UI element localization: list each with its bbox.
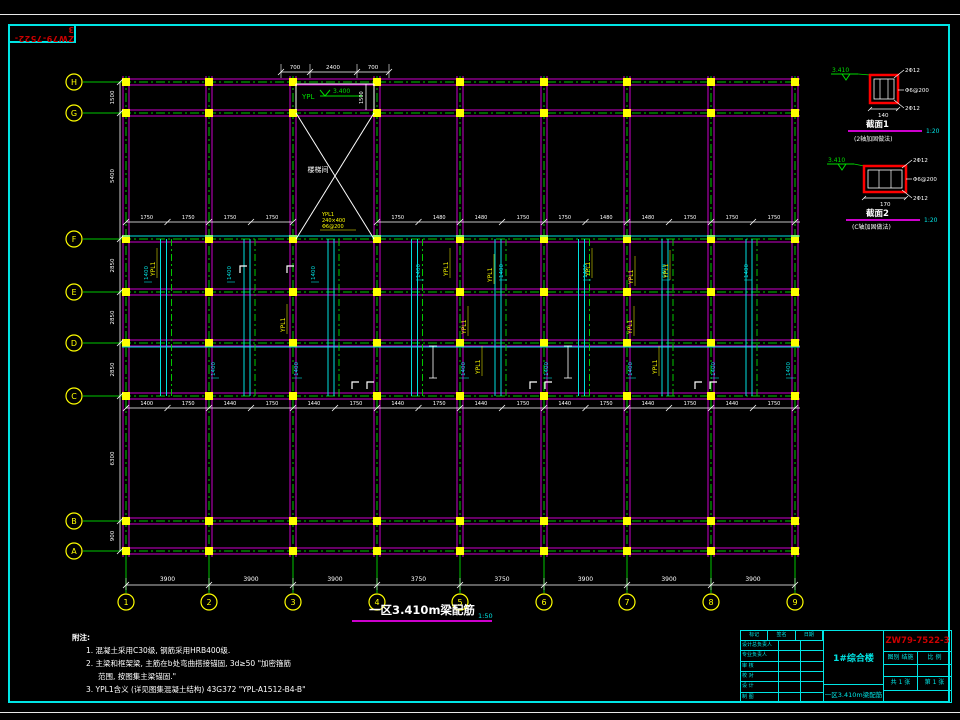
bay-dim-text: 1400 bbox=[416, 264, 422, 278]
column-marker bbox=[205, 547, 213, 555]
bay-dim-text: 1400 bbox=[461, 362, 467, 376]
row-axis-label: G bbox=[71, 109, 77, 118]
column-marker bbox=[623, 288, 631, 296]
column-marker bbox=[456, 339, 464, 347]
plan-title-block: 一区3.410m梁配筋 bbox=[352, 602, 492, 622]
drawing-title: 一区3.410m梁配筋 bbox=[824, 685, 883, 702]
column-marker bbox=[456, 78, 464, 86]
corner-bracket-icon bbox=[352, 382, 359, 389]
row-axis-label: C bbox=[71, 392, 77, 401]
title-block: 标记 签名 日期 设计总负责人 专业负责人 审 核 校 对 设 计 制 图 1#… bbox=[740, 630, 952, 703]
beam-label: YPL1 bbox=[461, 319, 468, 335]
tb-role: 设 计 bbox=[741, 682, 779, 691]
top-dim-text: 2400 bbox=[326, 65, 340, 71]
lower-dim-text: 1440 bbox=[558, 401, 571, 407]
bay-dim-text: 1400 bbox=[499, 264, 505, 278]
detail-scale: 1:20 bbox=[924, 217, 938, 224]
upper-dim-text: 1750 bbox=[684, 215, 697, 221]
level-symbol-icon bbox=[842, 74, 850, 80]
stirrup-outline bbox=[868, 170, 902, 188]
column-marker bbox=[540, 392, 548, 400]
column-marker bbox=[707, 288, 715, 296]
column-marker bbox=[791, 547, 799, 555]
ypl-label: YPL bbox=[301, 93, 314, 101]
left-dim-text: 2850 bbox=[110, 310, 116, 324]
left-dim-text: 5400 bbox=[110, 169, 116, 183]
bay-dim-text: 1400 bbox=[744, 264, 750, 278]
column-marker bbox=[791, 517, 799, 525]
section-detail-2: 3.410 2Φ12 Φ6@200 2Φ12 170 截面2 1:20 (C轴加… bbox=[824, 150, 960, 230]
corner-bracket-icon bbox=[367, 382, 374, 389]
bay-dim-text: 1400 bbox=[711, 362, 717, 376]
column-marker bbox=[791, 288, 799, 296]
tb-type-cell: 图别 结施 bbox=[884, 652, 918, 664]
beam-label: YPL1 bbox=[487, 267, 494, 283]
left-dim-text: 2850 bbox=[110, 258, 116, 272]
lower-dim-text: 1750 bbox=[517, 401, 530, 407]
column-marker bbox=[289, 547, 297, 555]
upper-dim-text: 1480 bbox=[475, 215, 488, 221]
tb-header-cell: 标记 bbox=[741, 631, 768, 640]
note-line: 范围, 按图集主梁锚固." bbox=[72, 670, 402, 683]
column-marker bbox=[456, 109, 464, 117]
lower-dim-text: 1440 bbox=[642, 401, 655, 407]
left-dim-text: 2850 bbox=[110, 362, 116, 376]
detail-sub: (C轴加固做法) bbox=[852, 223, 891, 230]
bay-dim-text: 1400 bbox=[311, 266, 317, 280]
column-marker bbox=[289, 517, 297, 525]
column-marker bbox=[373, 517, 381, 525]
col-axis-label: 8 bbox=[708, 598, 713, 607]
bay-dim-text: 1400 bbox=[628, 362, 634, 376]
upper-dim-text: 1750 bbox=[768, 215, 781, 221]
row-axis-label: F bbox=[72, 235, 77, 244]
beam-label: YPL1 bbox=[475, 359, 482, 375]
upper-dim-text: 1480 bbox=[600, 215, 613, 221]
top-dim-text: 700 bbox=[290, 65, 301, 71]
tb-header-cell: 签名 bbox=[768, 631, 795, 640]
beam-label: YPL1 bbox=[280, 317, 287, 333]
lower-dim-text: 1440 bbox=[391, 401, 404, 407]
bottom-rebar-label: 2Φ12 bbox=[913, 196, 928, 202]
upper-dim-text: 1750 bbox=[726, 215, 739, 221]
corner-bracket-icon bbox=[545, 382, 552, 389]
bottom-dim-text: 3900 bbox=[745, 576, 760, 583]
bottom-dim-text: 3900 bbox=[160, 576, 175, 583]
column-marker bbox=[623, 78, 631, 86]
column-marker bbox=[205, 392, 213, 400]
tb-role: 审 核 bbox=[741, 662, 779, 671]
col-axis-label: 3 bbox=[290, 598, 295, 607]
notes-heading: 附注: bbox=[72, 631, 402, 644]
detail-title: 截面2 bbox=[866, 208, 889, 219]
column-marker bbox=[623, 109, 631, 117]
column-marker bbox=[707, 517, 715, 525]
column-marker bbox=[791, 78, 799, 86]
column-marker bbox=[456, 392, 464, 400]
stair-vdim-text: 1500 bbox=[359, 91, 365, 104]
bottom-dim-text: 3900 bbox=[578, 576, 593, 583]
lower-dim-text: 1750 bbox=[684, 401, 697, 407]
upper-dim-text: 1750 bbox=[182, 215, 195, 221]
lower-dim-text: 1750 bbox=[350, 401, 363, 407]
bottom-dim-text: 3900 bbox=[661, 576, 676, 583]
lower-dim-text: 1440 bbox=[308, 401, 321, 407]
column-marker bbox=[540, 78, 548, 86]
tb-sheet-cell: 第 1 张 bbox=[918, 677, 951, 690]
section-detail-1: 3.410 2Φ12 Φ6@200 2Φ12 140 截面1 1:20 (2轴加… bbox=[828, 58, 958, 144]
tb-header-cell: 日期 bbox=[796, 631, 823, 640]
column-marker bbox=[205, 339, 213, 347]
column-marker bbox=[540, 288, 548, 296]
column-marker bbox=[205, 517, 213, 525]
column-marker bbox=[456, 547, 464, 555]
lower-dim-text: 1750 bbox=[768, 401, 781, 407]
stirrup-label: Φ6@200 bbox=[913, 177, 937, 183]
column-marker bbox=[623, 339, 631, 347]
left-dim-text: 6300 bbox=[110, 451, 116, 465]
top-rebar-label: 2Φ12 bbox=[913, 158, 928, 164]
level-value: 3.400 bbox=[333, 88, 350, 95]
plan-scale: 1:50 bbox=[478, 612, 493, 620]
drawing-sheet: ZW79-7522-3 HGFEDCBA123456789楼梯间YPL3.400… bbox=[0, 0, 960, 720]
upper-dim-text: 1750 bbox=[140, 215, 153, 221]
column-marker bbox=[623, 547, 631, 555]
top-dim-text: 700 bbox=[368, 65, 379, 71]
stairwell-label: 楼梯间 bbox=[308, 165, 329, 174]
upper-dim-text: 1750 bbox=[558, 215, 571, 221]
bottom-rebar-label: 2Φ12 bbox=[905, 106, 920, 112]
column-marker bbox=[791, 392, 799, 400]
lower-dim-text: 1750 bbox=[600, 401, 613, 407]
level-symbol-icon bbox=[838, 164, 846, 170]
detail-sub: (2轴加固做法) bbox=[854, 135, 893, 143]
bottom-dim-text: 3750 bbox=[494, 576, 509, 583]
column-marker bbox=[540, 547, 548, 555]
column-marker bbox=[791, 109, 799, 117]
beam-label: YPL1 bbox=[443, 261, 450, 277]
column-marker bbox=[623, 392, 631, 400]
top-rebar-label: 2Φ12 bbox=[905, 68, 920, 74]
lower-dim-text: 1440 bbox=[475, 401, 488, 407]
column-marker bbox=[289, 109, 297, 117]
bay-dim-text: 1400 bbox=[211, 362, 217, 376]
bottom-dim-text: 3750 bbox=[411, 576, 426, 583]
tb-sheet-cell: 共 1 张 bbox=[884, 677, 918, 690]
note-line: 1. 混凝土采用C30级, 钢筋采用HRB400级. bbox=[72, 644, 402, 657]
lower-dim-text: 1750 bbox=[182, 401, 195, 407]
upper-dim-text: 1750 bbox=[517, 215, 530, 221]
project-name: 1#综合楼 bbox=[824, 631, 883, 685]
lower-dim-text: 1750 bbox=[266, 401, 279, 407]
column-marker bbox=[540, 109, 548, 117]
plan-title: 一区3.410m梁配筋 bbox=[352, 602, 492, 618]
column-marker bbox=[373, 288, 381, 296]
detail-title: 截面1 bbox=[866, 119, 889, 130]
column-marker bbox=[456, 288, 464, 296]
detail-scale: 1:20 bbox=[926, 128, 940, 135]
beam-label: YPL1 bbox=[585, 261, 592, 277]
upper-dim-text: 1480 bbox=[642, 215, 655, 221]
column-marker bbox=[205, 109, 213, 117]
column-marker bbox=[205, 288, 213, 296]
bottom-dim-text: 3900 bbox=[243, 576, 258, 583]
upper-dim-text: 1480 bbox=[433, 215, 446, 221]
drawing-number: ZW79-7522-3 bbox=[886, 636, 950, 646]
beam-label: YPL1 bbox=[150, 261, 157, 277]
column-marker bbox=[791, 339, 799, 347]
titleblock-signature-table: 标记 签名 日期 设计总负责人 专业负责人 审 核 校 对 设 计 制 图 bbox=[741, 631, 824, 702]
col-axis-label: 2 bbox=[206, 598, 211, 607]
row-axis-label: E bbox=[71, 288, 76, 297]
plan-title-underline bbox=[352, 620, 492, 622]
col-axis-label: 1 bbox=[123, 598, 128, 607]
note-line: 2. 主梁和框架梁, 主筋在b处弯曲搭接锚固, 3d≥50 "加密箍筋 bbox=[72, 657, 402, 670]
lower-dim-text: 1440 bbox=[224, 401, 237, 407]
tb-role: 专业负责人 bbox=[741, 651, 779, 660]
corner-bracket-icon bbox=[695, 382, 702, 389]
row-axis-label: A bbox=[71, 547, 77, 556]
bay-dim-text: 1400 bbox=[544, 362, 550, 376]
lower-dim-text: 1440 bbox=[726, 401, 739, 407]
column-marker bbox=[373, 392, 381, 400]
level-text: 3.410 bbox=[828, 157, 845, 164]
left-dim-text: 1500 bbox=[110, 90, 116, 104]
corner-bracket-icon bbox=[530, 382, 537, 389]
stirrup-label: Φ6@200 bbox=[905, 88, 929, 94]
note-line: 3. YPL1含义 (详见图集混凝土结构) 43G372 "YPL-A1512-… bbox=[72, 683, 402, 696]
lower-dim-text: 1400 bbox=[140, 401, 153, 407]
row-axis-label: B bbox=[71, 517, 77, 526]
tb-role: 设计总负责人 bbox=[741, 641, 779, 650]
bay-dim-text: 1400 bbox=[227, 266, 233, 280]
column-marker bbox=[540, 339, 548, 347]
level-text: 3.410 bbox=[832, 67, 849, 74]
upper-dim-text: 1750 bbox=[224, 215, 237, 221]
stirrup-outline bbox=[874, 79, 894, 99]
bay-dim-text: 1400 bbox=[786, 362, 792, 376]
beam-label: YPL1 bbox=[627, 319, 634, 335]
notes-block: 附注: 1. 混凝土采用C30级, 钢筋采用HRB400级. 2. 主梁和框架梁… bbox=[72, 631, 402, 696]
col-axis-label: 7 bbox=[624, 598, 629, 607]
stair-beam-label: Φ6@200 bbox=[322, 224, 344, 230]
col-axis-label: 9 bbox=[792, 598, 797, 607]
column-marker bbox=[373, 109, 381, 117]
bay-dim-text: 1400 bbox=[294, 362, 300, 376]
column-marker bbox=[707, 392, 715, 400]
row-axis-label: D bbox=[71, 339, 77, 348]
lower-dim-text: 1750 bbox=[433, 401, 446, 407]
col-axis-label: 6 bbox=[541, 598, 546, 607]
width-dim: 170 bbox=[880, 202, 891, 208]
column-marker bbox=[289, 288, 297, 296]
column-marker bbox=[373, 547, 381, 555]
column-marker bbox=[707, 547, 715, 555]
column-marker bbox=[707, 339, 715, 347]
beam-label: YPL1 bbox=[652, 359, 659, 375]
row-axis-label: H bbox=[71, 78, 77, 87]
width-dim: 140 bbox=[878, 113, 889, 119]
column-marker bbox=[623, 517, 631, 525]
tb-role: 制 图 bbox=[741, 693, 779, 702]
column-marker bbox=[707, 109, 715, 117]
column-marker bbox=[289, 339, 297, 347]
level-symbol-icon bbox=[320, 90, 330, 96]
column-marker bbox=[540, 517, 548, 525]
tb-role: 校 对 bbox=[741, 672, 779, 681]
column-marker bbox=[289, 392, 297, 400]
beam-label: YPL1 bbox=[628, 269, 635, 285]
column-marker bbox=[373, 339, 381, 347]
column-marker bbox=[205, 78, 213, 86]
beam-label: YPL1 bbox=[663, 263, 670, 279]
column-marker bbox=[456, 517, 464, 525]
left-dim-text: 900 bbox=[110, 530, 116, 541]
bottom-dim-text: 3900 bbox=[327, 576, 342, 583]
column-marker bbox=[707, 78, 715, 86]
upper-dim-text: 1750 bbox=[266, 215, 279, 221]
tb-type-cell: 比 例 bbox=[918, 652, 951, 664]
upper-dim-text: 1750 bbox=[391, 215, 404, 221]
